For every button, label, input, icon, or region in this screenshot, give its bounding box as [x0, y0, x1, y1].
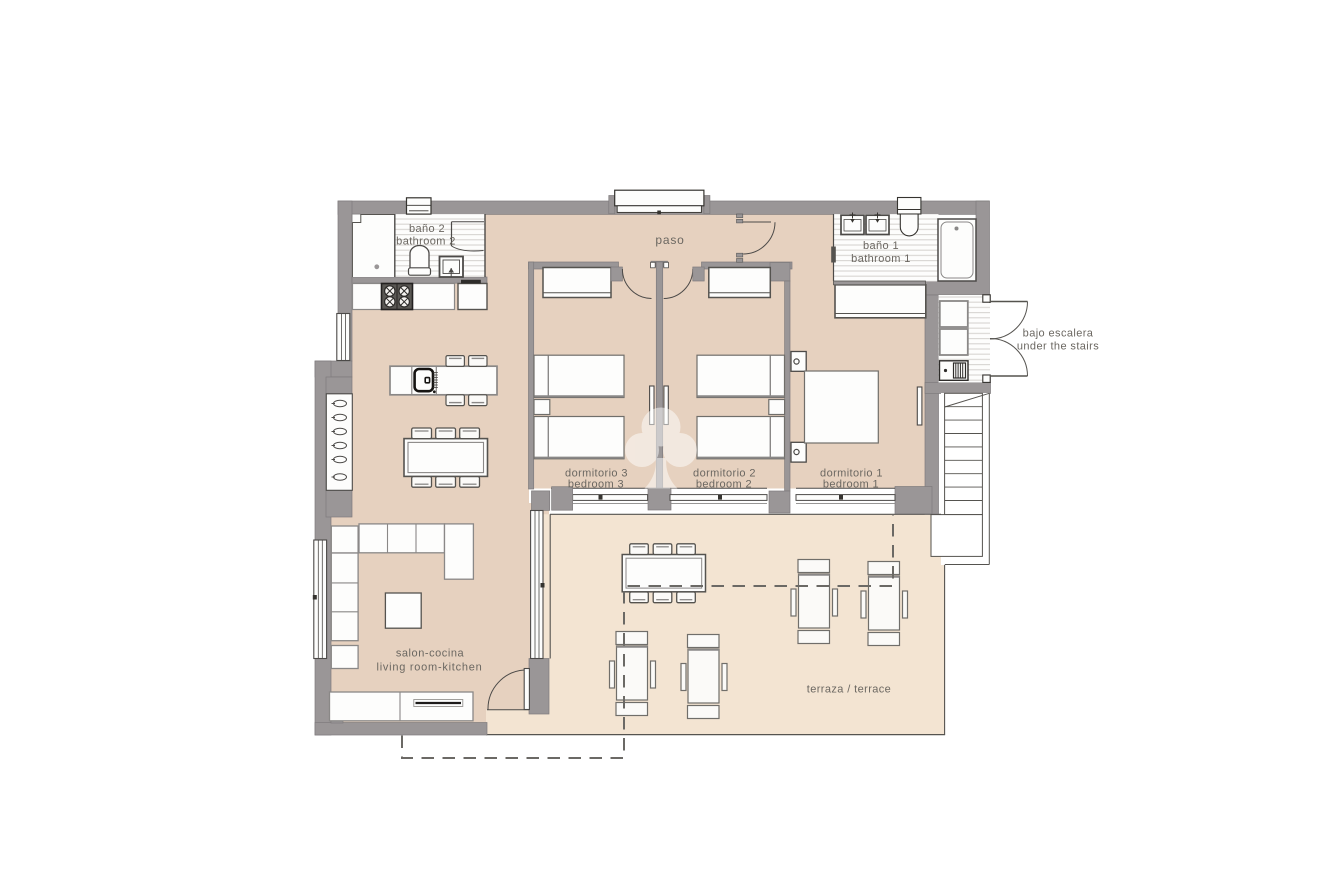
svg-text:bathroom 1: bathroom 1	[851, 253, 911, 265]
svg-text:bedroom 1: bedroom 1	[823, 478, 879, 490]
svg-text:baño 2: baño 2	[409, 223, 445, 235]
svg-text:bathroom 2: bathroom 2	[396, 236, 456, 248]
svg-text:salon-cocina: salon-cocina	[396, 648, 465, 660]
svg-text:paso: paso	[655, 233, 684, 247]
svg-text:bedroom 3: bedroom 3	[568, 478, 624, 490]
svg-text:bedroom 2: bedroom 2	[696, 478, 752, 490]
svg-text:baño 1: baño 1	[863, 240, 899, 252]
svg-text:bajo escalera: bajo escalera	[1023, 328, 1094, 340]
svg-text:under the stairs: under the stairs	[1017, 341, 1099, 353]
svg-text:living room-kitchen: living room-kitchen	[377, 662, 483, 674]
svg-text:terraza / terrace: terraza / terrace	[807, 684, 891, 696]
